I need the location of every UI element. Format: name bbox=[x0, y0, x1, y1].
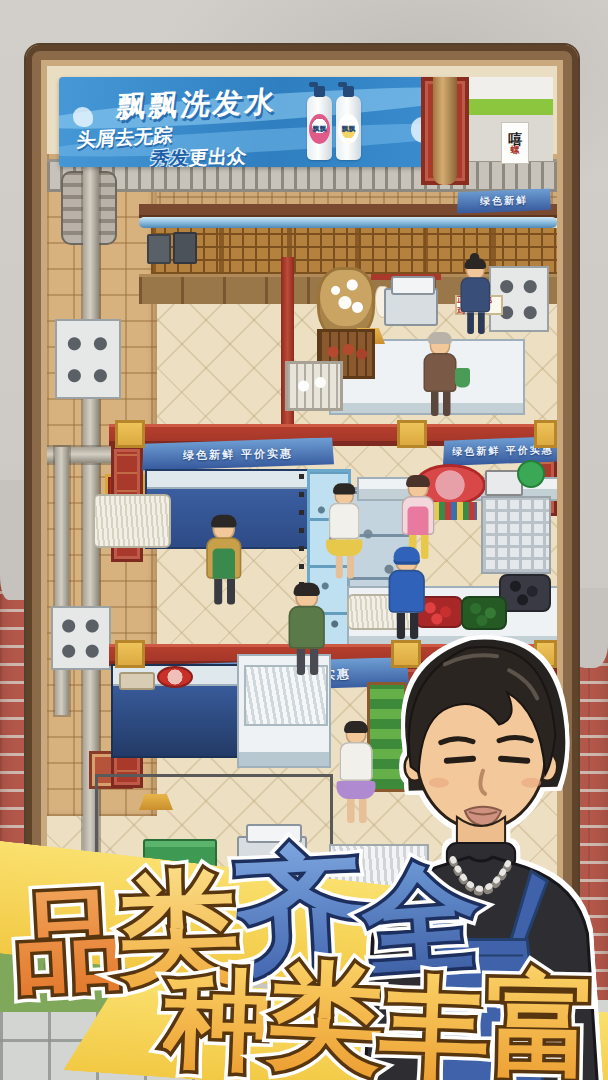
goods-rack[interactable] bbox=[481, 496, 551, 574]
vendor-poultry[interactable] bbox=[451, 261, 500, 334]
bottle-label: 飘飘 bbox=[338, 114, 359, 144]
shampoo-bottle: 飘飘 bbox=[307, 96, 332, 160]
gas-stove[interactable] bbox=[51, 606, 111, 670]
side-shop-sign: 嘻 螺 bbox=[501, 122, 529, 164]
customer-elderly[interactable] bbox=[413, 335, 467, 416]
fishmonger[interactable] bbox=[195, 518, 253, 604]
gas-stove[interactable] bbox=[55, 319, 121, 399]
price-tag-green bbox=[517, 460, 545, 488]
promo-char: 类类类 bbox=[265, 947, 388, 1080]
ad-slogan-accent: 秀发 bbox=[150, 146, 190, 167]
ad-slogan-rest: 更出众 bbox=[188, 144, 248, 167]
electric-box bbox=[147, 234, 171, 264]
banner-top-right: 绿色新鲜 bbox=[457, 188, 551, 214]
side-sign-char: 螺 bbox=[511, 146, 520, 155]
pillar-capital bbox=[534, 420, 557, 448]
shampoo-ad-banner: 飘飘洗发水 头屑去无踪 秀发更出众 飘飘 飘飘 bbox=[59, 77, 455, 167]
customer-green-vest[interactable] bbox=[277, 586, 336, 675]
pillar-capital bbox=[397, 420, 427, 448]
blue-pipe bbox=[139, 217, 557, 228]
vertical-pipe bbox=[55, 447, 69, 715]
pillar-capital bbox=[115, 420, 145, 448]
promo-char: 种种种 bbox=[162, 957, 274, 1080]
ad-slogan-2: 秀发更出众 bbox=[149, 143, 247, 167]
pillar-capital bbox=[115, 640, 145, 668]
shampoo-bottle: 飘飘 bbox=[336, 96, 361, 160]
customer-woman-white[interactable] bbox=[319, 486, 369, 578]
cash-register[interactable] bbox=[384, 288, 438, 326]
rabbit-pen[interactable] bbox=[285, 361, 343, 411]
game-screenshot: 飘飘洗发水 头屑去无踪 秀发更出众 飘飘 飘飘 嘻 螺 绿色新鲜 bbox=[0, 0, 608, 1080]
red-basin[interactable] bbox=[157, 666, 193, 688]
promo-text-line2: 种种种 类类类 丰丰丰 富富富 bbox=[162, 945, 594, 1080]
promo-char: 品品品 bbox=[12, 876, 126, 1006]
bottle-label: 飘飘 bbox=[309, 114, 330, 144]
water-splash bbox=[73, 107, 93, 127]
cutting-board[interactable] bbox=[119, 672, 155, 690]
promo-char: 丰丰丰 bbox=[378, 963, 492, 1080]
electric-box bbox=[173, 232, 197, 264]
side-sign-char: 嘻 bbox=[508, 132, 522, 146]
ad-brand-text: 飘飘洗发水 bbox=[115, 82, 280, 128]
fish-trays[interactable] bbox=[93, 494, 171, 548]
promo-char: 富富富 bbox=[485, 959, 601, 1080]
red-column bbox=[421, 77, 469, 185]
